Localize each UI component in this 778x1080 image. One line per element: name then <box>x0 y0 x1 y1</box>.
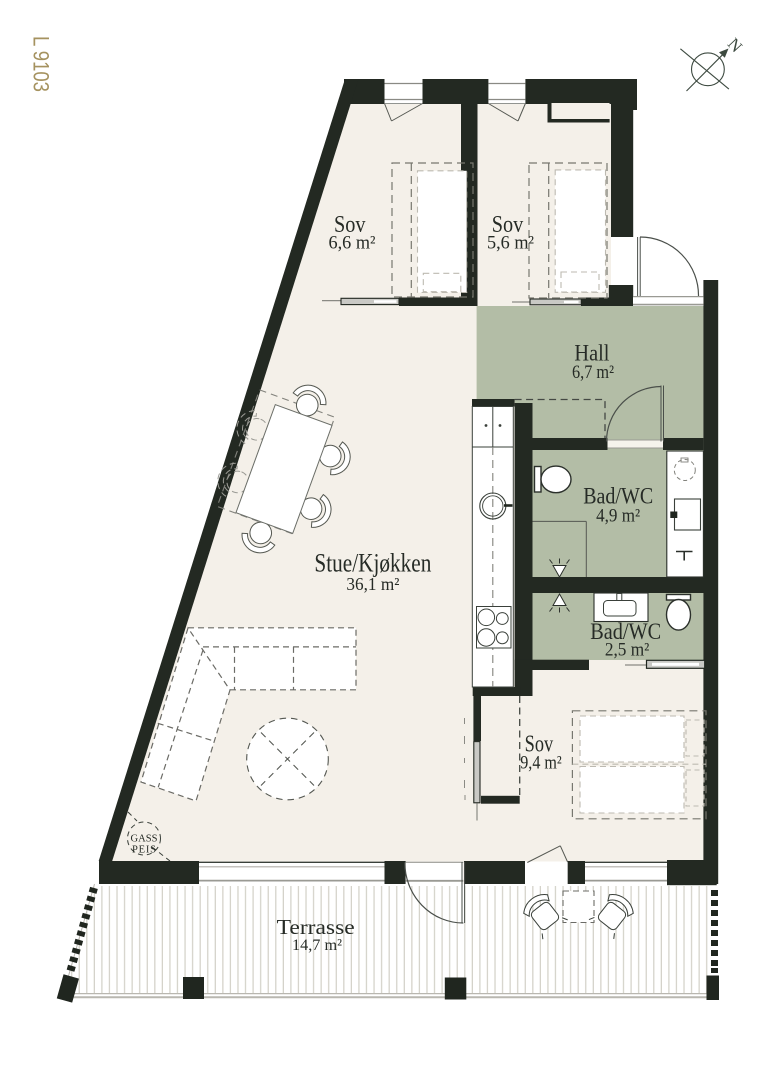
svg-text:4,9 m²: 4,9 m² <box>596 505 640 526</box>
svg-text:6,6 m²: 6,6 m² <box>329 233 376 254</box>
svg-text:Terrasse: Terrasse <box>277 915 355 939</box>
svg-text:PEIS: PEIS <box>132 845 156 856</box>
svg-text:5,6 m²: 5,6 m² <box>487 233 534 254</box>
svg-text:9,4 m²: 9,4 m² <box>520 753 562 774</box>
svg-text:2,5 m²: 2,5 m² <box>605 640 650 661</box>
svg-text:14,7 m²: 14,7 m² <box>292 937 342 954</box>
svg-text:GASS: GASS <box>131 834 158 845</box>
svg-text:36,1 m²: 36,1 m² <box>346 574 399 594</box>
svg-text:L 9103: L 9103 <box>29 36 54 92</box>
svg-text:N: N <box>724 34 746 56</box>
svg-text:6,7 m²: 6,7 m² <box>572 362 614 383</box>
